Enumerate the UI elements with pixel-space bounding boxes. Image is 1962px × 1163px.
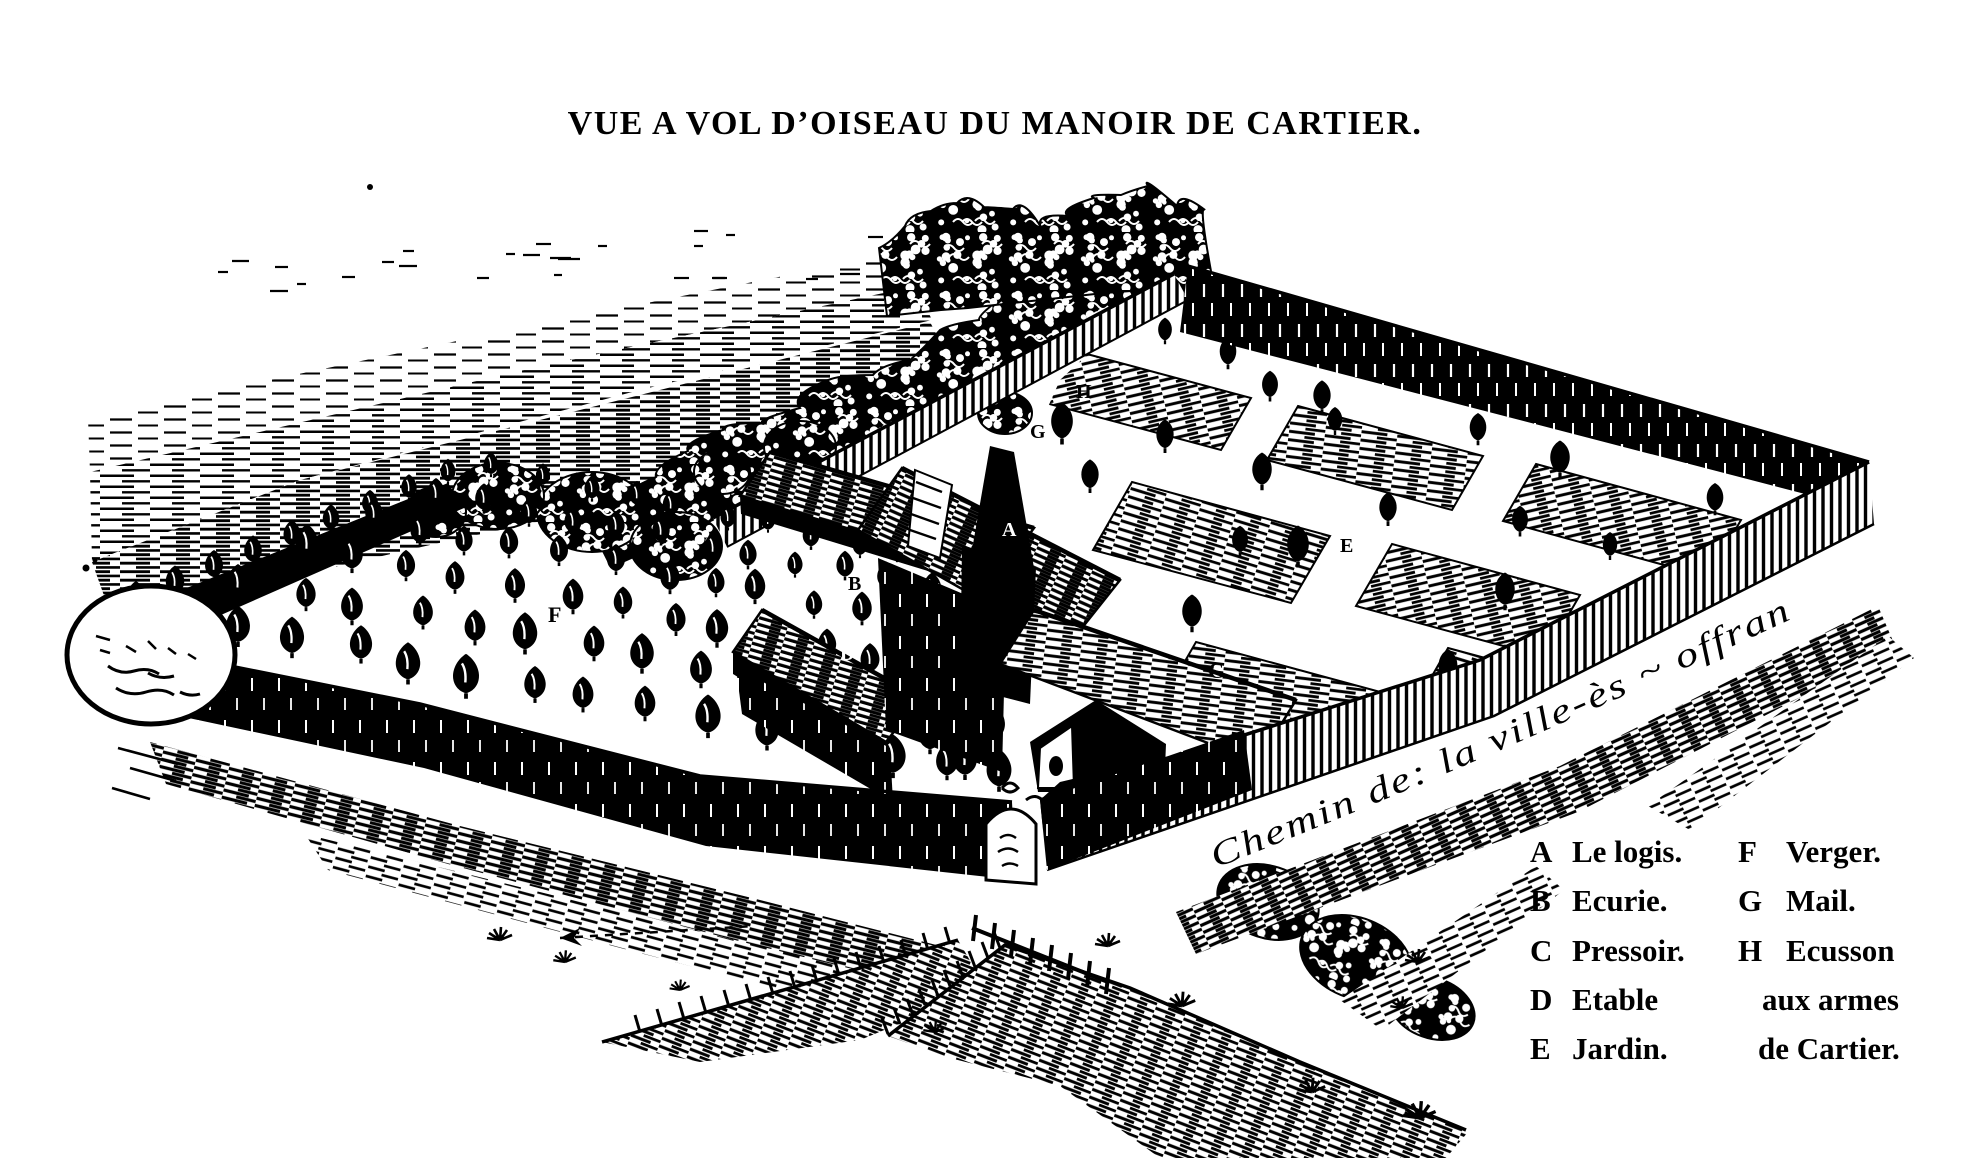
svg-text:Pressoir.: Pressoir.: [1572, 933, 1685, 968]
svg-text:B: B: [848, 573, 861, 595]
svg-text:G: G: [1738, 883, 1762, 918]
svg-text:F: F: [1738, 834, 1757, 869]
svg-text:Ecurie.: Ecurie.: [1572, 883, 1668, 918]
svg-text:H: H: [1076, 381, 1092, 403]
svg-text:G: G: [1030, 421, 1046, 443]
svg-text:VUE A VOL D’OISEAU DU MANOIR D: VUE A VOL D’OISEAU DU MANOIR DE CARTIER.: [568, 105, 1423, 142]
svg-text:E: E: [1340, 535, 1353, 557]
svg-text:D: D: [1530, 982, 1552, 1017]
svg-text:C: C: [1530, 933, 1552, 968]
svg-text:de Cartier.: de Cartier.: [1758, 1031, 1900, 1066]
svg-text:D: D: [840, 643, 854, 665]
svg-text:aux armes: aux armes: [1762, 982, 1899, 1017]
svg-text:F: F: [548, 602, 561, 627]
svg-text:Mail.: Mail.: [1786, 883, 1856, 918]
svg-text:A: A: [1002, 519, 1017, 541]
svg-text:Jardin.: Jardin.: [1572, 1031, 1668, 1066]
svg-text:Ecusson: Ecusson: [1786, 933, 1895, 968]
svg-text:E: E: [1530, 1031, 1551, 1066]
svg-text:Etable: Etable: [1572, 982, 1658, 1017]
svg-text:H: H: [1738, 933, 1762, 968]
svg-text:B: B: [1530, 883, 1551, 918]
svg-text:Verger.: Verger.: [1786, 834, 1881, 869]
svg-text:C: C: [1208, 658, 1224, 683]
svg-text:A: A: [1530, 834, 1553, 869]
svg-text:Le logis.: Le logis.: [1572, 834, 1682, 869]
